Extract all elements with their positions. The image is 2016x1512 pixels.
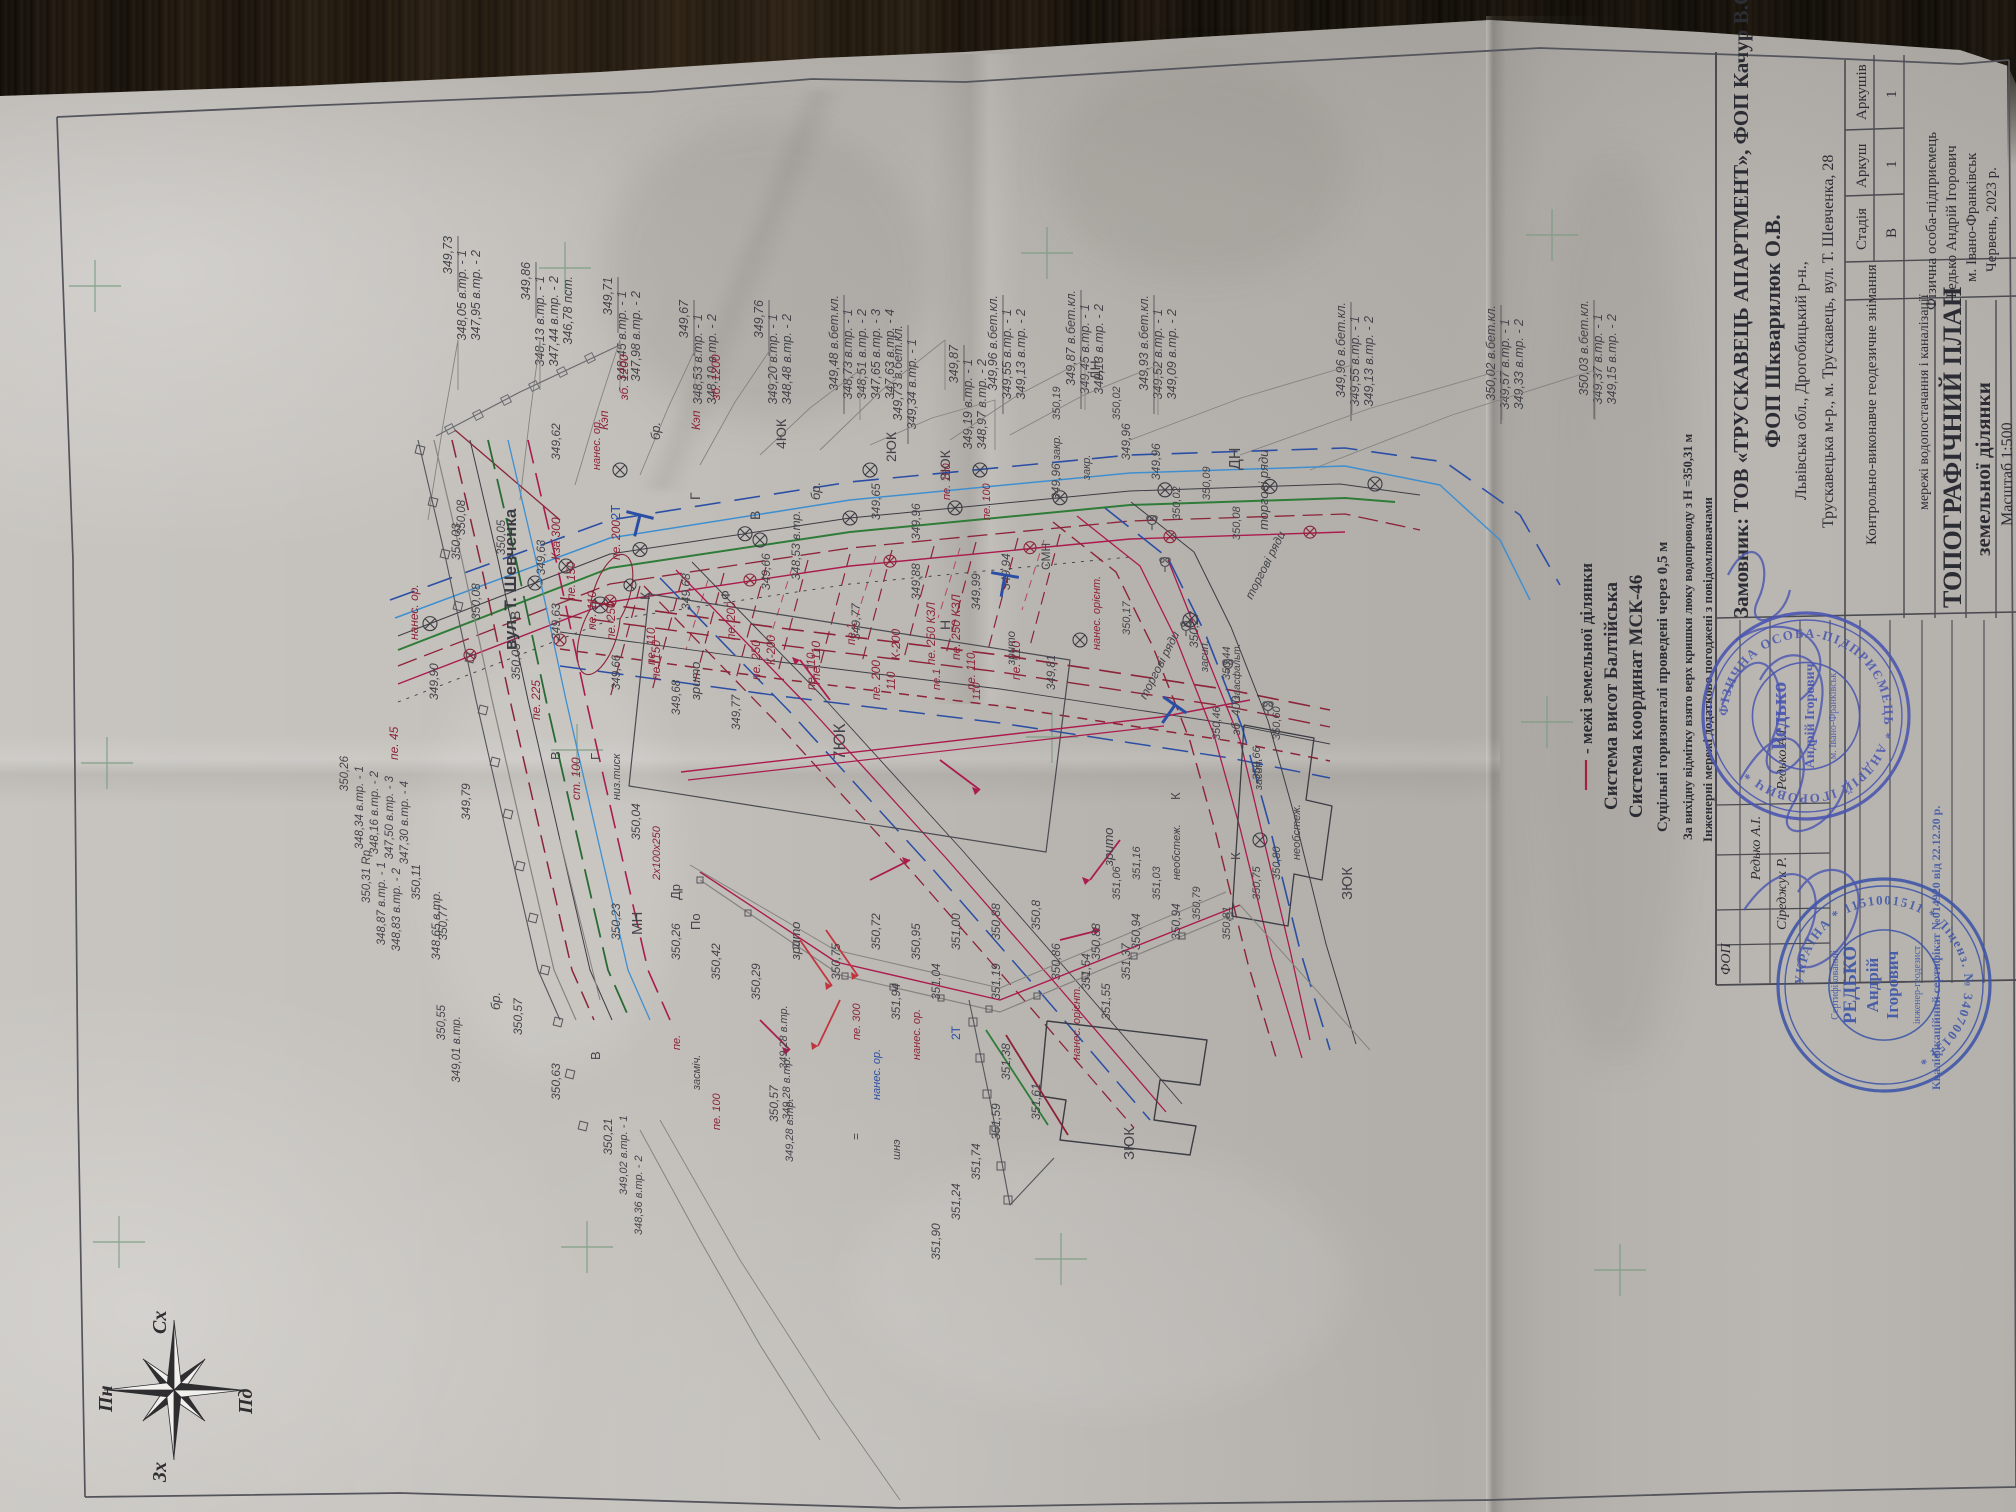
svg-text:ДН: ДН [1087, 360, 1103, 380]
svg-text:Пн: Пн [95, 1385, 117, 1413]
svg-text:В: В [548, 751, 563, 760]
svg-text:Стадія: Стадія [1854, 208, 1870, 250]
svg-text:нанес. орієнт.: нанес. орієнт. [1091, 576, 1103, 650]
svg-text:349,48 в.бет.кл.: 349,48 в.бет.кл. [827, 295, 841, 391]
svg-text:пе. 250 КЗЛ: пе. 250 КЗЛ [949, 594, 963, 660]
svg-text:350,08: 350,08 [469, 583, 483, 620]
svg-text:350,03 в.бет.кл.: 350,03 в.бет.кл. [1577, 300, 1591, 396]
svg-text:пе. 100: пе. 100 [711, 1092, 723, 1130]
svg-text:бр.: бр. [488, 992, 503, 1010]
svg-text:350,02: 350,02 [1111, 386, 1123, 420]
svg-text:Суцільні горизонталі проведені: Суцільні горизонталі проведені через 0,5… [1655, 542, 1671, 832]
svg-text:350,08: 350,08 [456, 499, 468, 535]
svg-text:349,99: 349,99 [969, 573, 983, 610]
svg-text:За вихідну відмітку взято верх: За вихідну відмітку взято верх кришки лю… [1681, 433, 1695, 840]
svg-text:Др: Др [668, 884, 683, 900]
svg-text:349,09 в.тр. - 2: 349,09 в.тр. - 2 [1165, 309, 1179, 400]
svg-text:349,55 в.тр. - 1: 349,55 в.тр. - 1 [1348, 316, 1362, 406]
svg-text:пе. 110: пе. 110 [585, 591, 599, 630]
svg-text:2Т: 2Т [949, 1025, 963, 1040]
svg-text:346,78 пст.: 346,78 пст. [561, 276, 575, 345]
svg-text:350,11: 350,11 [409, 864, 423, 900]
svg-text:350,75: 350,75 [1251, 865, 1263, 900]
svg-text:350,77: 350,77 [438, 904, 450, 940]
svg-text:350,75: 350,75 [829, 943, 843, 980]
svg-text:ЗЮК: ЗЮК [1121, 1127, 1138, 1160]
svg-text:348,83 в.тр. - 2: 348,83 в.тр. - 2 [391, 867, 403, 951]
svg-text:348,48 в.тр. - 2: 348,48 в.тр. - 2 [780, 314, 794, 405]
svg-text:350,46: 350,46 [1211, 705, 1223, 740]
svg-text:закр.: закр. [1081, 455, 1093, 481]
svg-text:347,65 в.тр. - 3: 347,65 в.тр. - 3 [869, 309, 883, 400]
svg-text:пе.1: пе.1 [846, 623, 858, 645]
svg-text:351,38: 351,38 [999, 1043, 1013, 1080]
svg-text:пе. 250: пе. 250 [749, 640, 763, 680]
svg-text:350,29: 350,29 [749, 963, 763, 1000]
svg-text:350,42: 350,42 [709, 943, 723, 980]
svg-text:349,28 в.тр.: 349,28 в.тр. [778, 1005, 790, 1069]
svg-text:пе. 300: пе. 300 [851, 1002, 863, 1040]
svg-text:2х100х250: 2х100х250 [651, 825, 663, 881]
svg-text:Кза 300: Кза 300 [549, 517, 563, 560]
svg-text:350,09: 350,09 [1201, 466, 1213, 500]
svg-text:350,81: 350,81 [1221, 906, 1233, 940]
svg-text:пе. 110: пе. 110 [966, 652, 978, 690]
svg-text:350,31 Rp: 350,31 Rp [361, 849, 373, 903]
svg-text:351,90: 351,90 [929, 1223, 943, 1260]
svg-text:пе. 150: пе. 150 [566, 561, 578, 600]
svg-text:350,72: 350,72 [869, 913, 883, 950]
svg-text:нанес. орієнт.: нанес. орієнт. [1071, 986, 1083, 1060]
svg-text:пе. 225: пе. 225 [529, 680, 543, 720]
svg-text:пе. 100: пе. 100 [981, 482, 993, 520]
svg-text:К: К [1168, 792, 1183, 800]
svg-text:351,59: 351,59 [989, 1103, 1003, 1140]
svg-text:351,55: 351,55 [1099, 983, 1113, 1020]
svg-text:Трускавецька м-р., м. Трускаве: Трускавецька м-р., м. Трускавець, вул. Т… [1820, 155, 1837, 528]
svg-text:349,55 в.тр. - 1: 349,55 в.тр. - 1 [1000, 309, 1014, 399]
svg-text:348,51 в.тр. - 2: 348,51 в.тр. - 2 [855, 309, 869, 400]
svg-text:349,88: 349,88 [909, 563, 923, 600]
svg-text:Сіреджук Р.: Сіреджук Р. [1775, 857, 1790, 930]
svg-text:347,44 в.тр. - 2: 347,44 в.тр. - 2 [547, 276, 561, 367]
svg-text:Масштаб 1:500: Масштаб 1:500 [1999, 422, 2016, 526]
svg-text:350,57: 350,57 [511, 997, 525, 1035]
svg-text:350,57: 350,57 [767, 1084, 781, 1122]
svg-text:348,53 в.тр. - 1: 348,53 в.тр. - 1 [691, 314, 705, 404]
svg-text:349,13 в.тр. - 2: 349,13 в.тр. - 2 [1362, 316, 1376, 407]
svg-text:350,88: 350,88 [989, 903, 1003, 940]
svg-text:349,63: 349,63 [536, 539, 548, 575]
svg-text:бр.: бр. [808, 482, 823, 500]
svg-text:348,36 в.тр. - 2: 348,36 в.тр. - 2 [633, 1155, 645, 1235]
svg-text:349,68: 349,68 [671, 679, 683, 715]
svg-text:349,81: 349,81 [1046, 655, 1058, 690]
svg-text:Кваліфікаційний сертифікат №01: Кваліфікаційний сертифікат №014920 від 2… [1929, 806, 1943, 1090]
svg-text:Сертифікований: Сертифікований [1830, 950, 1841, 1020]
svg-text:торгові ряди: торгові ряди [1256, 450, 1271, 530]
svg-text:Г: Г [687, 492, 703, 500]
svg-text:349,01 в.тр.: 349,01 в.тр. [451, 1016, 463, 1083]
svg-text:349,66: 349,66 [611, 654, 623, 690]
svg-text:пе.1: пе.1 [931, 669, 943, 690]
svg-text:зрито: зрито [1006, 630, 1018, 666]
svg-text:ДН: ДН [1227, 448, 1244, 470]
svg-text:349,19 в.тр. - 1: 349,19 в.тр. - 1 [961, 359, 975, 449]
svg-text:інженер-геодезист: інженер-геодезист [1912, 945, 1923, 1024]
svg-text:349,68: 349,68 [679, 573, 693, 610]
svg-text:350,02 в.бет.кл.: 350,02 в.бет.кл. [1484, 305, 1498, 401]
svg-text:349,20 в.тр. - 1: 349,20 в.тр. - 1 [766, 314, 780, 404]
svg-text:К: К [637, 591, 653, 600]
svg-text:ст. 100: ст. 100 [569, 757, 583, 800]
svg-text:2ЮК: 2ЮК [883, 431, 899, 462]
svg-text:349,63: 349,63 [549, 603, 563, 640]
svg-text:зб. 1200: зб. 1200 [617, 354, 631, 401]
svg-text:К: К [1228, 852, 1243, 860]
svg-text:349,15 в.тр. - 2: 349,15 в.тр. - 2 [1605, 314, 1619, 405]
svg-text:зрито: зрито [1101, 828, 1116, 867]
svg-text:351,19: 351,19 [989, 963, 1003, 1000]
svg-text:347,95 в.тр. - 2: 347,95 в.тр. - 2 [469, 250, 483, 341]
svg-text:необстеж.: необстеж. [1291, 804, 1303, 860]
svg-text:348,87 в.тр. - 1: 348,87 в.тр. - 1 [376, 862, 388, 945]
svg-text:Г: Г [588, 753, 603, 760]
svg-text:351,37: 351,37 [1119, 942, 1133, 980]
svg-text:пе. 200: пе. 200 [609, 520, 623, 560]
svg-text:348,73 в.тр. - 1: 348,73 в.тр. - 1 [841, 309, 855, 399]
svg-text:Аркушів: Аркушів [1854, 64, 1870, 120]
svg-text:349,77: 349,77 [731, 694, 743, 730]
svg-text:351,06: 351,06 [1111, 865, 1123, 900]
svg-text:349,93 в.бет.кл.: 349,93 в.бет.кл. [1137, 295, 1151, 391]
svg-text:349,96: 349,96 [1149, 443, 1163, 480]
svg-text:350,19: 350,19 [1051, 386, 1063, 420]
svg-text:шнэ: шнэ [891, 1139, 903, 1160]
svg-text:Замовник: ТОВ «ТРУСКАВЕЦЬ АПАР: Замовник: ТОВ «ТРУСКАВЕЦЬ АПАРТМЕНТ», ФО… [1729, 0, 1753, 618]
svg-text:349,13 в.тр. - 2: 349,13 в.тр. - 2 [1014, 309, 1028, 400]
svg-text:необстеж.: необстеж. [1171, 824, 1183, 880]
svg-text:350,44: 350,44 [1221, 646, 1233, 680]
svg-text:350,55: 350,55 [436, 1004, 448, 1040]
svg-text:350,26: 350,26 [669, 923, 683, 960]
svg-text:В: В [1884, 228, 1900, 238]
svg-text:ЗЮК: ЗЮК [1339, 867, 1356, 900]
svg-text:мережі водопостачання і каналі: мережі водопостачання і каналізації [1917, 294, 1932, 510]
svg-text:торгові ряди: торгові ряди [1242, 529, 1288, 602]
svg-text:347,98 в.тр. - 2: 347,98 в.тр. - 2 [629, 291, 643, 382]
svg-text:350,86: 350,86 [1049, 943, 1063, 980]
svg-text:351,74: 351,74 [969, 1143, 983, 1180]
svg-text:349,34 в.тр. - 1: 349,34 в.тр. - 1 [905, 339, 919, 429]
svg-text:351,03: 351,03 [1151, 865, 1163, 900]
svg-text:Сх: Сх [149, 1311, 171, 1334]
svg-text:348,16 в.тр. - 2: 348,16 в.тр. - 2 [369, 770, 381, 854]
svg-text:350,17: 350,17 [1121, 600, 1133, 635]
svg-text:СМН: СМН [1039, 543, 1053, 570]
svg-text:350,80: 350,80 [1271, 845, 1283, 880]
svg-text:пе. 110: пе. 110 [806, 652, 818, 690]
svg-text:В: В [507, 611, 523, 620]
svg-text:Ігорович: Ігорович [1883, 950, 1902, 1019]
svg-text:349,37 в.тр. - 1: 349,37 в.тр. - 1 [1591, 314, 1605, 404]
svg-text:Андрій: Андрій [1863, 957, 1882, 1012]
svg-text:349,96: 349,96 [1119, 423, 1133, 460]
svg-text:пе. 150: пе. 150 [941, 462, 953, 500]
svg-text:Львівська обл., Дрогобицький р: Львівська обл., Дрогобицький р-н., [1793, 261, 1810, 500]
svg-text:351,61: 351,61 [1029, 1083, 1043, 1120]
svg-text:К-200: К-200 [889, 629, 903, 660]
svg-text:пе.: пе. [671, 1035, 683, 1050]
svg-text:351,16: 351,16 [1131, 845, 1143, 880]
svg-text:По: По [688, 913, 703, 930]
svg-text:348,05 в.тр. - 1: 348,05 в.тр. - 1 [455, 250, 469, 340]
svg-text:350,79: 350,79 [1191, 886, 1203, 920]
svg-text:нанес. ор.: нанес. ор. [911, 1009, 923, 1060]
svg-text:351,00: 351,00 [949, 913, 963, 950]
svg-text:4ЮК: 4ЮК [773, 418, 789, 449]
svg-text:МН: МН [629, 912, 646, 935]
svg-text:В: В [747, 511, 763, 520]
svg-text:349,76: 349,76 [752, 300, 766, 338]
svg-text:349,87 в.бет.кл.: 349,87 в.бет.кл. [1064, 290, 1078, 386]
svg-text:349,57 в.тр. - 1: 349,57 в.тр. - 1 [1498, 319, 1512, 409]
svg-text:349,86: 349,86 [519, 262, 533, 300]
svg-text:К-200: К-200 [766, 635, 778, 665]
svg-text:земельної ділянки: земельної ділянки [1971, 382, 1995, 556]
svg-text:Пд: Пд [235, 1388, 257, 1415]
svg-text:350,04: 350,04 [629, 803, 643, 840]
svg-text:РЕДЬКО: РЕДЬКО [1840, 946, 1861, 1024]
svg-text:ТОПОГРАФІЧНИЙ ПЛАН: ТОПОГРАФІЧНИЙ ПЛАН [1938, 287, 1967, 608]
svg-text:349,96 в.бет.кл.: 349,96 в.бет.кл. [1334, 302, 1348, 398]
svg-text:пе. 200: пе. 200 [869, 660, 883, 700]
svg-text:нанес. ор.: нанес. ор. [591, 419, 603, 470]
svg-text:торгові ряди: торгові ряди [1136, 629, 1182, 702]
svg-text:348,34 в.тр. - 1: 348,34 в.тр. - 1 [354, 766, 366, 849]
svg-text:349,62: 349,62 [549, 423, 563, 460]
svg-text:Система координат МСК-46: Система координат МСК-46 [1626, 575, 1647, 818]
svg-text:347,50 в.тр. - 3: 347,50 в.тр. - 3 [384, 775, 396, 859]
svg-text:350,60: 350,60 [1271, 705, 1283, 740]
svg-text:349,73: 349,73 [441, 236, 455, 274]
svg-text:ФОП Шкварилюк О.В.: ФОП Шкварилюк О.В. [1760, 214, 1785, 448]
svg-text:низ.тиск: низ.тиск [611, 753, 623, 800]
svg-text:110: 110 [886, 671, 898, 690]
svg-text:349,02 в.тр. - 1: 349,02 в.тр. - 1 [618, 1115, 630, 1195]
svg-text:350,08: 350,08 [1231, 505, 1243, 540]
svg-text:бр.: бр. [648, 422, 663, 440]
svg-text:Редько А.І.: Редько А.І. [1749, 816, 1764, 881]
svg-text:пе. 110: пе. 110 [646, 627, 658, 665]
svg-text:348,53 в.тр.: 348,53 в.тр. [789, 510, 803, 580]
svg-text:351,24: 351,24 [949, 1183, 963, 1220]
svg-text:Контрольно-виконавче геодезичн: Контрольно-виконавче геодезичне знімання [1864, 264, 1880, 545]
svg-text:349,96: 349,96 [909, 503, 923, 540]
svg-text:Система висот Балтійська: Система висот Балтійська [1601, 582, 1622, 810]
svg-text:зб. 1200: зб. 1200 [709, 354, 723, 401]
svg-text:засип.: засип. [1253, 758, 1265, 791]
svg-text:Аркуш: Аркуш [1854, 143, 1870, 188]
svg-text:2Т: 2Т [608, 505, 623, 520]
svg-text:Кэп: Кэп [689, 410, 703, 430]
svg-text:349,87: 349,87 [947, 344, 961, 383]
svg-text:Редько Андрій Ігорович: Редько Андрій Ігорович [1944, 145, 1960, 298]
svg-text:Фізична особа-підприємець: Фізична особа-підприємець [1924, 132, 1940, 310]
svg-text:350,63: 350,63 [549, 1063, 563, 1100]
svg-text:350,02: 350,02 [1171, 486, 1183, 520]
svg-text:Ф: Ф [718, 590, 733, 600]
svg-text:350,8: 350,8 [1029, 900, 1043, 930]
svg-text:350,95: 350,95 [909, 923, 923, 960]
svg-text:350,23: 350,23 [609, 903, 623, 940]
svg-text:Червень, 2023 р.: Червень, 2023 р. [1984, 167, 2000, 272]
svg-text:зрито: зрито [688, 662, 703, 701]
svg-text:пе. 45: пе. 45 [387, 726, 401, 760]
svg-text:350,05: 350,05 [509, 643, 523, 680]
svg-text:350,05: 350,05 [496, 519, 508, 555]
svg-text:349,66: 349,66 [759, 553, 773, 590]
svg-text:ФОП: ФОП [1719, 942, 1734, 975]
svg-text:350,26: 350,26 [339, 755, 351, 791]
svg-text:350,21: 350,21 [601, 1118, 615, 1155]
svg-text:м. Івано-Франківськ: м. Івано-Франківськ [1964, 152, 1980, 282]
svg-text:Зх: Зх [149, 1462, 171, 1483]
svg-text:351,54: 351,54 [1079, 953, 1093, 990]
svg-text:нанес. ор.: нанес. ор. [407, 584, 421, 640]
svg-text:закр.: закр. [1051, 435, 1063, 461]
svg-text:м. Івано-Франківськ: м. Івано-Франківськ [1828, 673, 1839, 759]
svg-text:пе. 250 КЗЛ: пе. 250 КЗЛ [926, 602, 938, 665]
svg-text:1: 1 [1884, 91, 1900, 99]
svg-text:349,96: 349,96 [1049, 463, 1063, 500]
svg-text:350,94: 350,94 [1169, 903, 1183, 940]
svg-text:зрито: зрито [788, 922, 803, 961]
svg-text:1: 1 [1884, 161, 1900, 169]
svg-text:349,79: 349,79 [459, 783, 473, 820]
svg-text:349,67: 349,67 [677, 299, 691, 338]
svg-text:349,90: 349,90 [427, 663, 441, 700]
svg-text:пе. 200: пе. 200 [726, 601, 738, 640]
svg-text:349,96 в.бет.кл.: 349,96 в.бет.кл. [986, 295, 1000, 391]
svg-text:349,65: 349,65 [869, 483, 883, 520]
svg-text:засміч.: засміч. [691, 1055, 703, 1091]
svg-text:351,94: 351,94 [889, 983, 903, 1020]
svg-text:В: В [588, 1051, 603, 1060]
svg-text:=: = [849, 1133, 863, 1140]
svg-text:- межі земельної ділянки: - межі земельної ділянки [1577, 563, 1596, 754]
svg-text:349,94: 349,94 [999, 553, 1013, 590]
svg-text:349,71: 349,71 [601, 277, 615, 315]
svg-text:347,30 в.тр. - 4: 347,30 в.тр. - 4 [399, 781, 411, 864]
svg-text:пе. 250: пе. 250 [606, 601, 618, 640]
svg-text:351,04: 351,04 [929, 963, 943, 1000]
svg-text:зб. 400: зб. 400 [1229, 696, 1243, 736]
svg-text:нанес. ор.: нанес. ор. [871, 1049, 883, 1100]
